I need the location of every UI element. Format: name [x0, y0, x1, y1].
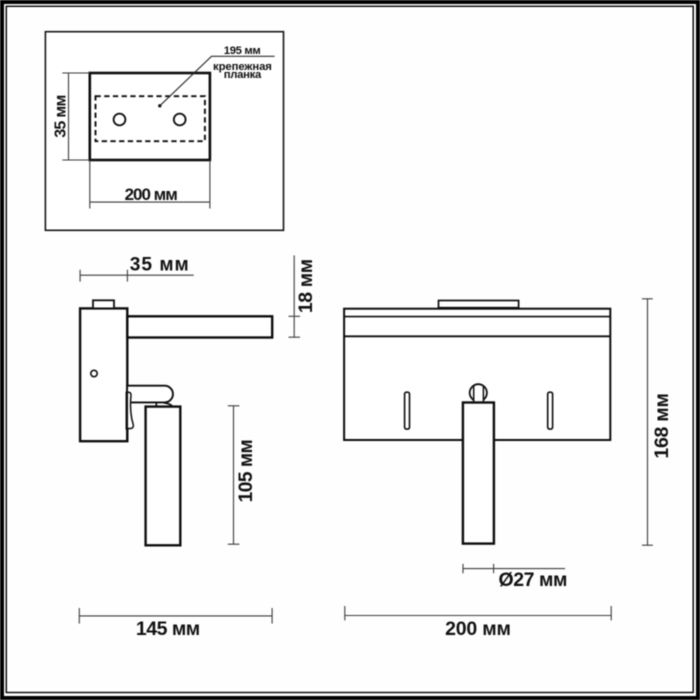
svg-text:35 мм: 35 мм — [130, 254, 190, 275]
svg-text:145 мм: 145 мм — [136, 618, 200, 640]
svg-text:168 мм: 168 мм — [651, 393, 673, 458]
svg-text:18 мм: 18 мм — [295, 259, 317, 313]
svg-text:105 мм: 105 мм — [236, 440, 257, 502]
svg-text:35 мм: 35 мм — [53, 95, 70, 137]
svg-text:планка: планка — [224, 69, 262, 81]
svg-text:Ø27 мм: Ø27 мм — [499, 569, 567, 591]
svg-text:200 мм: 200 мм — [125, 185, 178, 204]
svg-text:195 мм: 195 мм — [224, 45, 261, 57]
svg-text:200 мм: 200 мм — [445, 618, 511, 640]
